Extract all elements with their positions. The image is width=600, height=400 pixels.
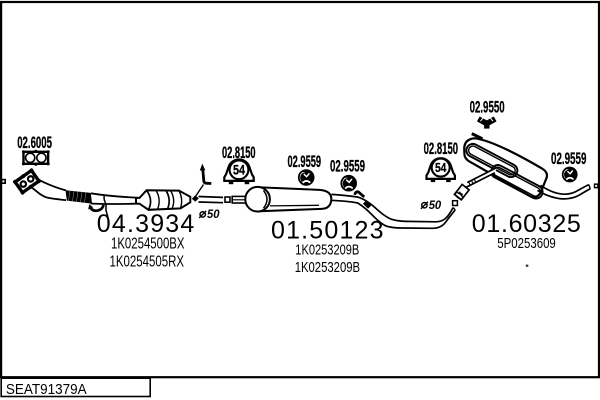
- svg-text:54: 54: [435, 160, 447, 175]
- svg-text:1K0253209B: 1K0253209B: [295, 260, 361, 276]
- svg-text:5P0253609: 5P0253609: [497, 236, 556, 252]
- svg-text:01.50123: 01.50123: [271, 216, 384, 244]
- svg-text:01.60325: 01.60325: [472, 210, 581, 238]
- svg-text:SEAT91379A: SEAT91379A: [6, 382, 87, 398]
- svg-text:02.9559: 02.9559: [551, 150, 586, 168]
- svg-text:1K0254500BX: 1K0254500BX: [111, 235, 185, 252]
- svg-text:54: 54: [233, 162, 245, 177]
- svg-text:02.6005: 02.6005: [17, 134, 52, 152]
- svg-text:02.9559: 02.9559: [288, 153, 322, 171]
- svg-text:02.8150: 02.8150: [424, 140, 459, 158]
- svg-text:04.3934: 04.3934: [97, 210, 195, 238]
- svg-text:1K0254505RX: 1K0254505RX: [110, 254, 185, 271]
- svg-text:02.9550: 02.9550: [470, 99, 505, 117]
- svg-text:1K0253209B: 1K0253209B: [295, 242, 359, 258]
- svg-text:50: 50: [207, 207, 220, 221]
- svg-text:02.9559: 02.9559: [330, 157, 365, 175]
- svg-text:50: 50: [429, 198, 442, 212]
